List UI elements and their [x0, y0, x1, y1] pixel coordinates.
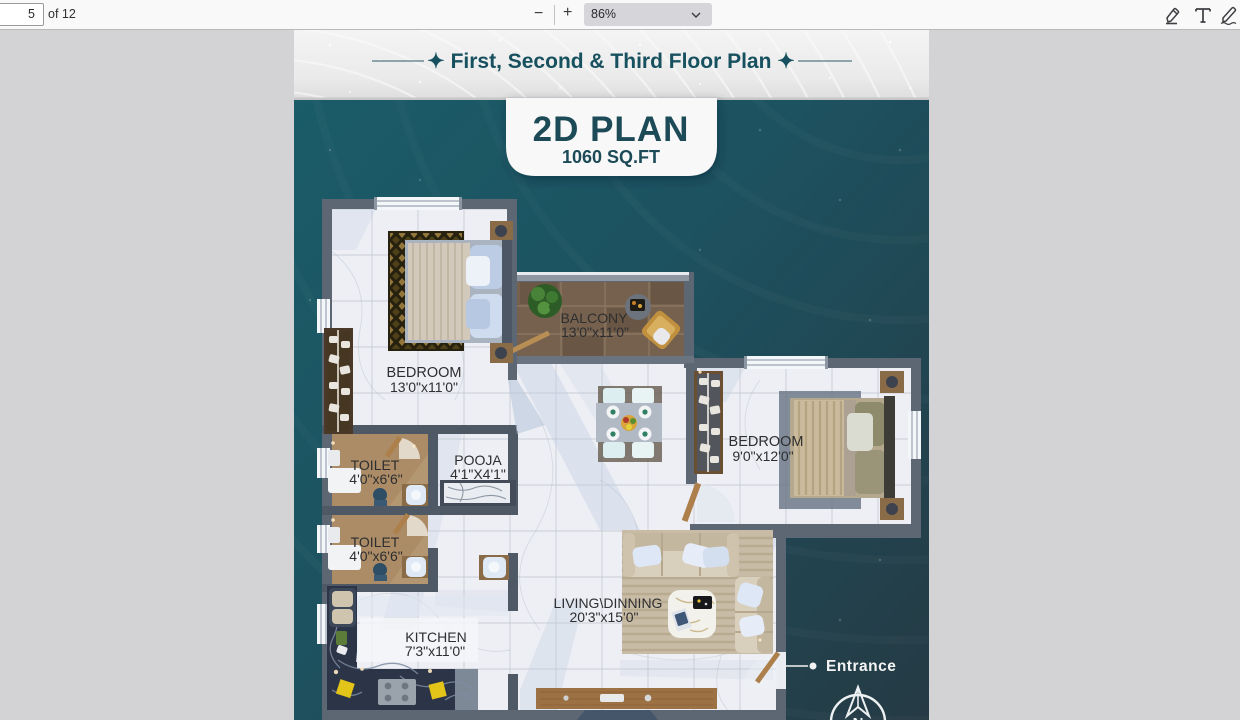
svg-text:1060 SQ.FT: 1060 SQ.FT: [562, 147, 660, 167]
svg-text:N: N: [853, 715, 864, 720]
svg-text:2D PLAN: 2D PLAN: [533, 110, 690, 149]
svg-text:7'3"x11'0": 7'3"x11'0": [405, 643, 465, 659]
svg-text:13'0"x11'0": 13'0"x11'0": [561, 324, 629, 340]
svg-text:Entrance: Entrance: [826, 658, 896, 675]
svg-text:4'1"X4'1": 4'1"X4'1": [450, 466, 506, 482]
svg-text:9'0"x12'0": 9'0"x12'0": [732, 448, 793, 464]
svg-text:20'3"x15'0": 20'3"x15'0": [569, 609, 638, 625]
svg-text:✦ First, Second & Third Floor: ✦ First, Second & Third Floor Plan ✦: [427, 50, 795, 73]
svg-text:4'0"x6'6": 4'0"x6'6": [349, 471, 402, 487]
svg-text:13'0"x11'0": 13'0"x11'0": [390, 379, 458, 395]
svg-text:4'0"x6'6": 4'0"x6'6": [349, 548, 402, 564]
